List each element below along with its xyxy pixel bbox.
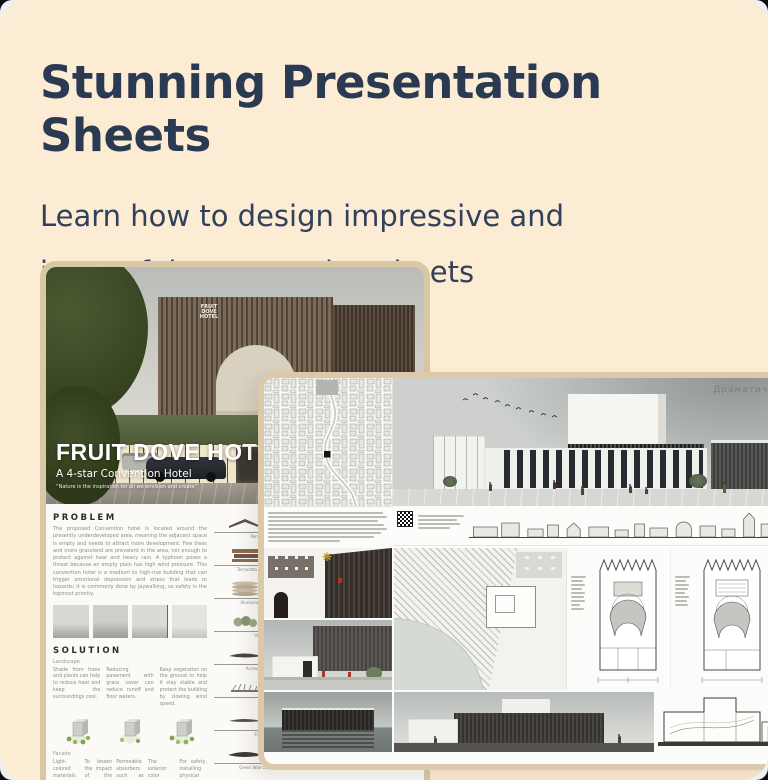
- facade-col: The exterior color facade of the buildin…: [148, 760, 176, 780]
- address-block: [418, 511, 464, 545]
- plan-drawing: [588, 548, 668, 690]
- facade-col: For safety, installing physical barriers…: [179, 760, 207, 780]
- facade-col: Light-colored materials to reflect the h…: [53, 760, 81, 780]
- colonnade-fins: [497, 450, 703, 488]
- landscape-col: Keep vegetation on the ground to help it…: [160, 668, 207, 710]
- facade-label: Facade: [53, 751, 207, 757]
- entry-steps: [264, 677, 392, 690]
- hotel-caption: FRUIT DOVE HOTEL A 4-star Convention Hot…: [56, 439, 288, 490]
- project-info-strip: [393, 508, 768, 546]
- dark-theatre-volume: [282, 708, 374, 730]
- theatre-render: Драматически: [393, 378, 768, 506]
- water-reflection: [282, 730, 374, 748]
- city-skyline-elevation: [469, 511, 768, 541]
- visitor-silhouette: [274, 592, 288, 618]
- facade-col: Permeable absorbers such as strong trees…: [116, 760, 144, 780]
- right-wing: [711, 440, 768, 493]
- map-caption-text: [264, 508, 392, 546]
- plan-legend: [672, 548, 692, 690]
- red-sign: [338, 578, 342, 583]
- floor-plan-1: [568, 548, 671, 690]
- interior-render: ❋: [264, 548, 392, 618]
- site-photo: [132, 605, 168, 638]
- person-silhouette: [629, 486, 632, 493]
- person-silhouette: [723, 484, 726, 493]
- facade-columns: Light-colored materials to reflect the h…: [53, 760, 207, 780]
- iso-building-diagram: [113, 716, 147, 748]
- white-entrance-box: [272, 656, 318, 678]
- floor-plan-2: [672, 548, 768, 690]
- facade-col: To lessen the impact of the winds, the b…: [85, 760, 113, 780]
- site-photo: [53, 605, 89, 638]
- site-photo: [93, 605, 129, 638]
- fly-tower-elevation: [502, 699, 550, 713]
- fly-tower: [568, 394, 666, 446]
- plan-drawing: [692, 548, 768, 690]
- birds-flock: [453, 382, 573, 422]
- context-blocks: [516, 552, 562, 578]
- iso-building-diagram: [165, 716, 199, 748]
- hotel-subtitle: A 4-star Convention Hotel: [56, 468, 288, 480]
- qr-code: [397, 511, 413, 527]
- section-drawing: [656, 692, 768, 752]
- building-footprint: [486, 586, 536, 628]
- landscape-columns: Shade from trees and plants can help to …: [53, 668, 207, 710]
- problem-text: The proposed Convention hotel is located…: [53, 526, 207, 599]
- page-title: Stunning Presentation Sheets: [40, 56, 740, 162]
- site-plan: [394, 548, 567, 690]
- hotel-facade-sign: FRUIT DOVE HOTEL: [196, 305, 222, 320]
- elevation-render: [394, 692, 654, 752]
- hotel-title: FRUIT DOVE HOTEL: [56, 439, 288, 466]
- person-silhouette: [553, 482, 556, 489]
- waterfront-render: [264, 692, 392, 752]
- picture-frames: [268, 556, 314, 578]
- person-silhouette: [581, 488, 584, 495]
- theatre-title: Драматически: [713, 385, 768, 395]
- site-photos-row: [53, 605, 207, 638]
- dark-slat-elevation: [454, 713, 604, 743]
- hotel-main-column: PROBLEM The proposed Convention hotel is…: [53, 513, 207, 780]
- solution-heading: SOLUTION: [53, 646, 207, 656]
- tree: [689, 474, 707, 488]
- dark-slat-facade: [313, 626, 392, 671]
- hero-card: Stunning Presentation Sheets Learn how t…: [0, 0, 768, 780]
- iso-building-diagram: [61, 716, 95, 748]
- site-photo: [172, 605, 208, 638]
- ground-strip: [394, 743, 654, 752]
- landscape-label: Landscape: [53, 659, 207, 665]
- slatted-wall: [325, 548, 392, 618]
- isometric-diagrams-row: [53, 716, 207, 748]
- presentation-sheet-theatre: Драматически: [258, 372, 768, 770]
- person-silhouette: [645, 489, 648, 494]
- white-block-elevation: [408, 719, 458, 743]
- city-figure-ground-map: [264, 378, 393, 507]
- landscape-col: Shade from trees and plants can help to …: [53, 668, 100, 710]
- person-silhouette: [489, 484, 492, 491]
- problem-heading: PROBLEM: [53, 513, 207, 523]
- chandelier-icon: ❋: [322, 550, 332, 564]
- landscape-col: Reducing pavement with grass cover can r…: [106, 668, 153, 710]
- person-silhouette: [618, 736, 621, 743]
- exterior-render: [264, 620, 392, 690]
- tree: [443, 476, 457, 487]
- left-slab: [433, 436, 485, 490]
- hotel-tagline: “Nature is the inspiration for all we en…: [56, 484, 288, 490]
- plan-legend: [568, 548, 588, 690]
